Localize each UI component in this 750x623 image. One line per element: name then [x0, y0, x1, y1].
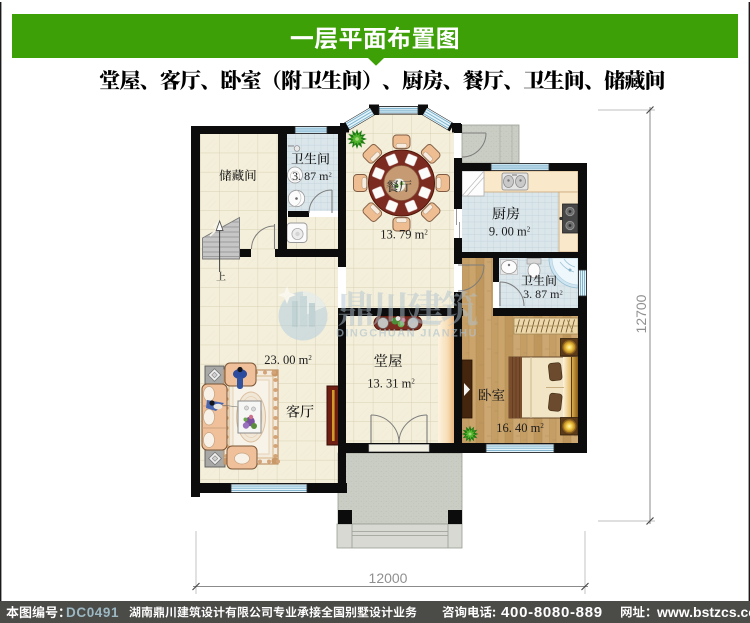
svg-text:www.bstzcs.com: www.bstzcs.com: [656, 604, 750, 620]
svg-text:3. 87 m2: 3. 87 m2: [523, 287, 563, 301]
svg-text:13. 31 m2: 13. 31 m2: [367, 377, 415, 391]
svg-text:12000: 12000: [369, 570, 408, 586]
svg-text:DINGCHUAN JIANZHU: DINGCHUAN JIANZHU: [336, 328, 478, 340]
svg-text:23. 00 m2: 23. 00 m2: [264, 353, 312, 367]
svg-text:3. 87 m2: 3. 87 m2: [292, 169, 332, 183]
svg-text:12700: 12700: [633, 294, 649, 333]
svg-text:DC0491: DC0491: [66, 605, 119, 620]
svg-text:400-8080-889: 400-8080-889: [501, 604, 603, 621]
svg-text:16. 40 m2: 16. 40 m2: [496, 421, 544, 435]
svg-text:13. 79 m2: 13. 79 m2: [380, 228, 428, 242]
svg-text:9. 00 m2: 9. 00 m2: [489, 225, 531, 239]
